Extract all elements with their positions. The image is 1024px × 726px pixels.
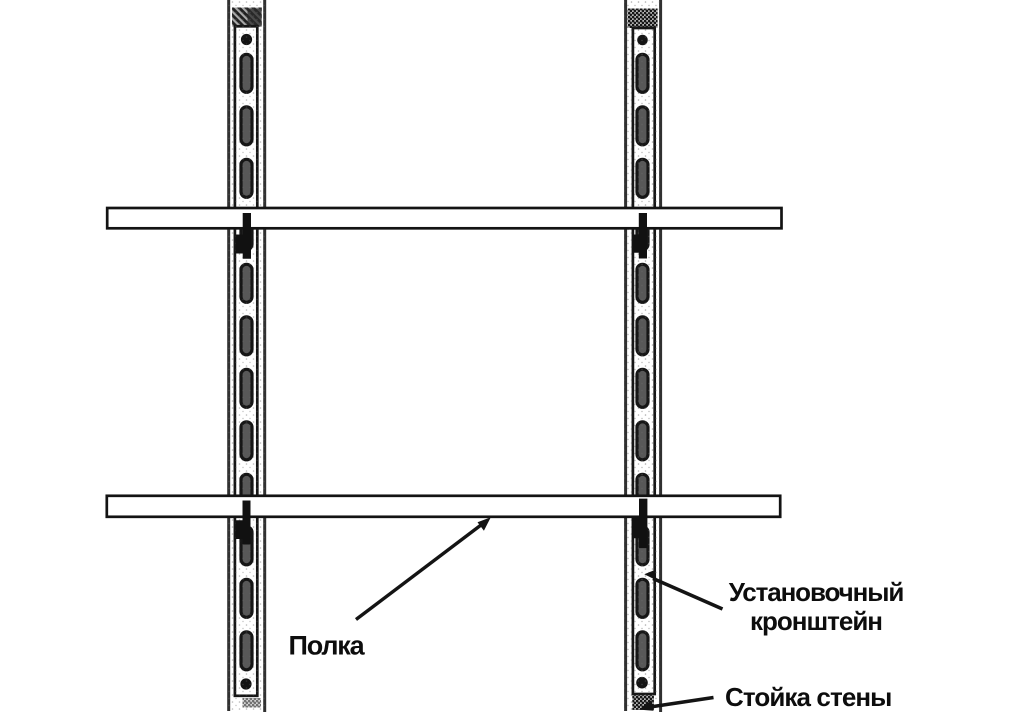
svg-text:кронштейн: кронштейн	[750, 606, 882, 636]
svg-text:Стойка стены: Стойка стены	[725, 682, 892, 712]
svg-text:Установочный: Установочный	[729, 577, 904, 607]
svg-text:Полка: Полка	[289, 631, 366, 661]
